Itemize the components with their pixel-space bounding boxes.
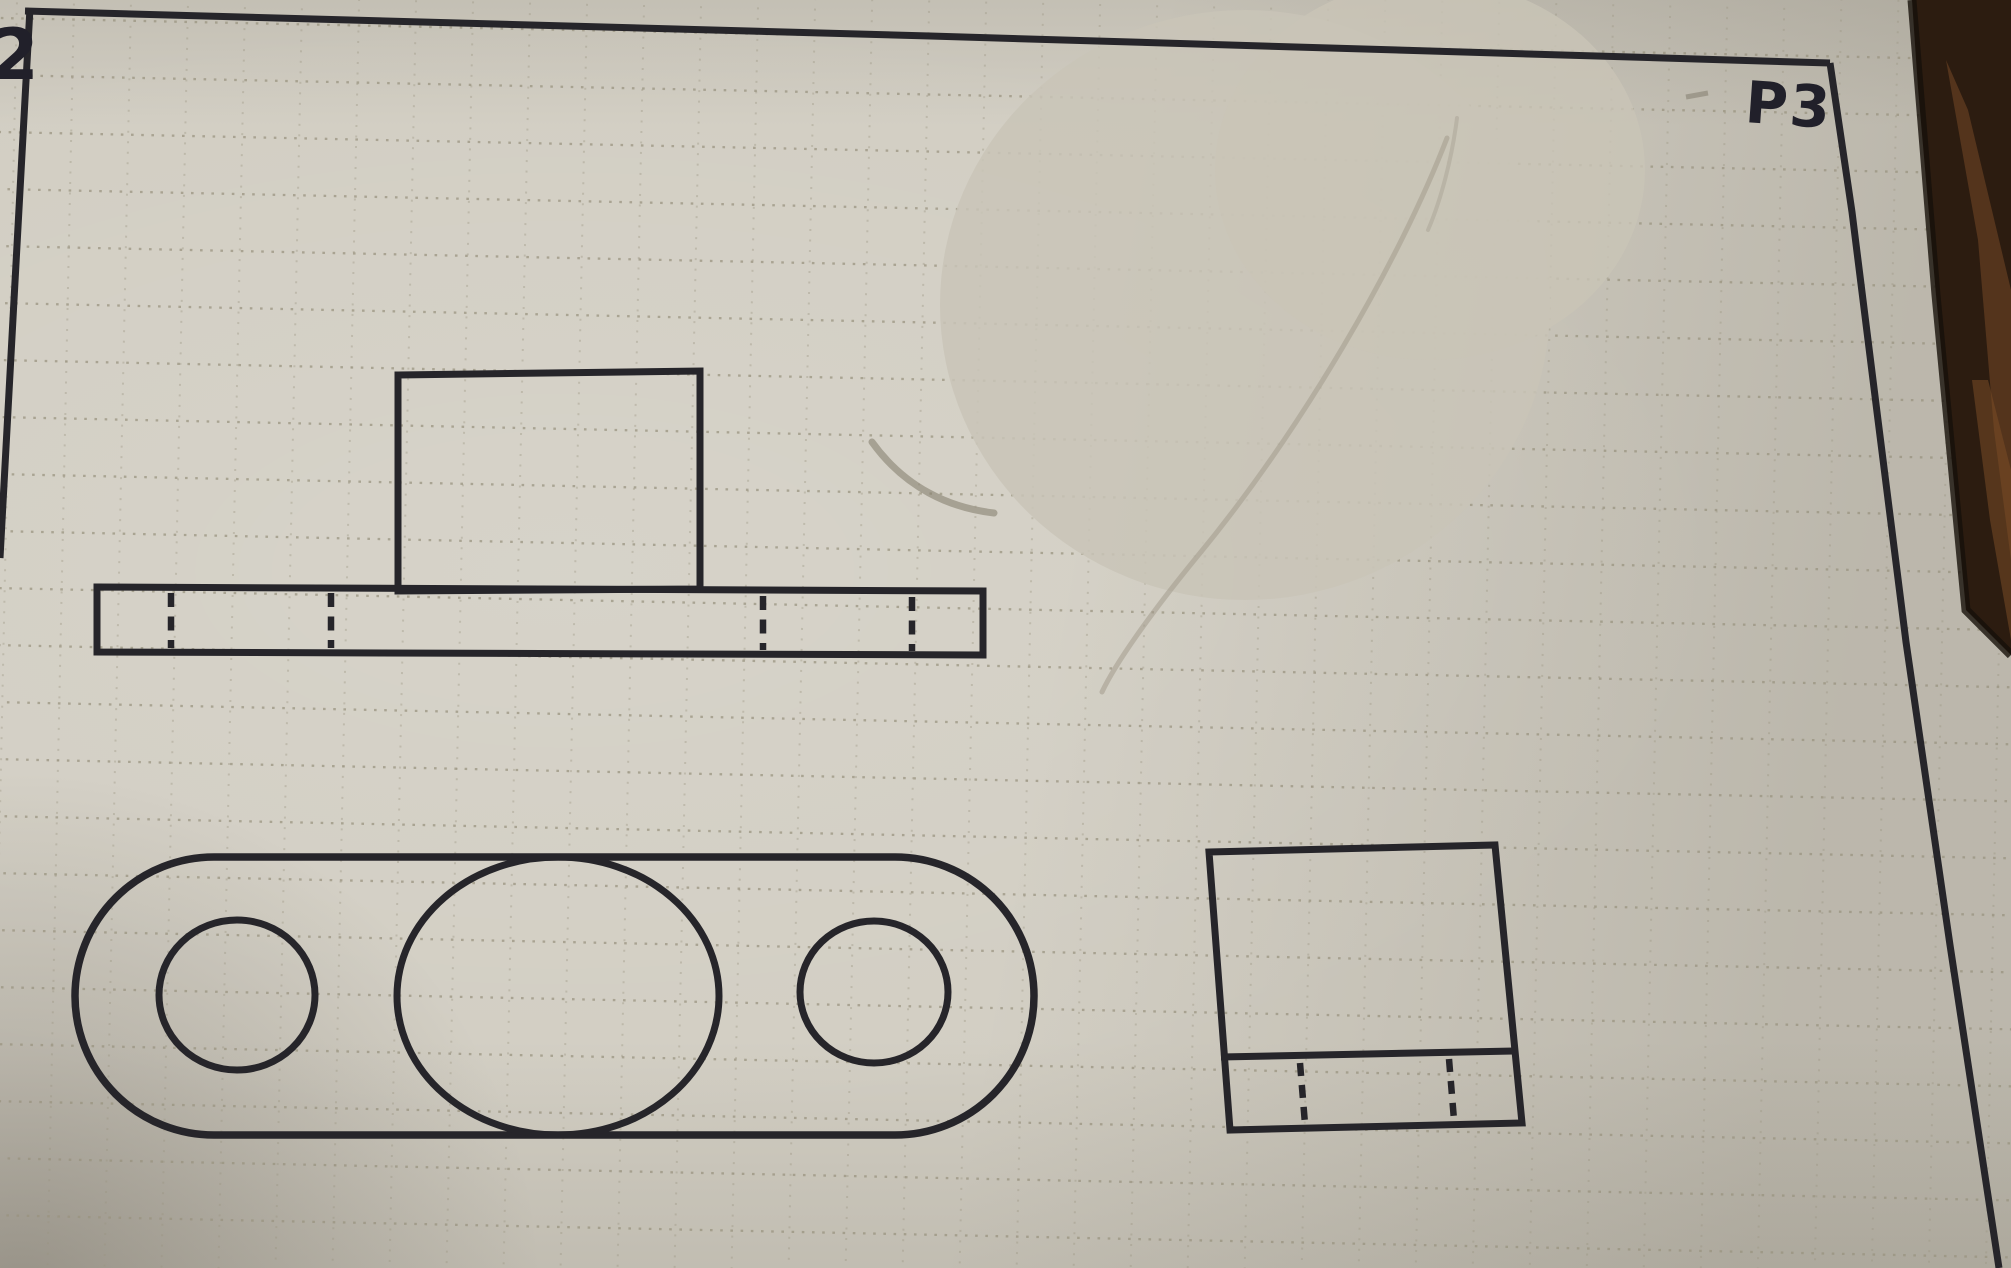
- front-boss: [398, 371, 700, 591]
- photo-scene: 2 P3: [0, 0, 2011, 1268]
- grid-line: [388, 0, 417, 1268]
- page-label: P3: [1743, 68, 1834, 142]
- grid-line: [445, 0, 474, 1268]
- grid-line: [217, 0, 246, 1268]
- grid-line: [502, 0, 531, 1268]
- front-base-plate: [97, 587, 983, 655]
- plan-left-hole: [159, 920, 315, 1070]
- grid-line: [901, 0, 930, 1268]
- grid-line: [0, 758, 2011, 803]
- plan-right-hole: [800, 921, 948, 1063]
- hidden-line: [1300, 1063, 1305, 1124]
- pencil-tick: [1686, 93, 1708, 97]
- grid-line: [730, 0, 759, 1268]
- plan-view: [75, 857, 1034, 1135]
- hidden-line: [1449, 1059, 1454, 1120]
- side-plate-divider: [1221, 1051, 1514, 1057]
- grid-line: [0, 74, 2011, 119]
- erased-area: [940, 0, 1645, 600]
- grid-line: [844, 0, 873, 1268]
- front-view: [97, 371, 983, 655]
- plan-obround-outline: [75, 857, 1034, 1135]
- drawing-photo: 2 P3: [0, 0, 2011, 1268]
- grid-line: [0, 1213, 2011, 1258]
- grid-line: [1813, 0, 1842, 1268]
- grid-line: [1699, 0, 1728, 1268]
- sheet-number-label: 2: [0, 14, 39, 96]
- grid-line: [787, 0, 816, 1268]
- grid-line: [160, 0, 189, 1268]
- grid-line: [1870, 0, 1899, 1268]
- grid-line: [103, 0, 132, 1268]
- grid-line: [0, 530, 2011, 575]
- grid-line: [0, 986, 2011, 1031]
- grid-line: [1642, 0, 1671, 1268]
- grid-line: [1756, 0, 1785, 1268]
- grid-line: [0, 1156, 2011, 1201]
- grid-line: [0, 587, 2011, 632]
- wood-table-corner: [1912, 0, 2011, 655]
- grid-line: [331, 0, 360, 1268]
- grid-line: [274, 0, 303, 1268]
- grid-line: [616, 0, 645, 1268]
- grid-line: [0, 701, 2011, 746]
- grid-line: [559, 0, 588, 1268]
- plan-center-boss-circle: [397, 857, 719, 1135]
